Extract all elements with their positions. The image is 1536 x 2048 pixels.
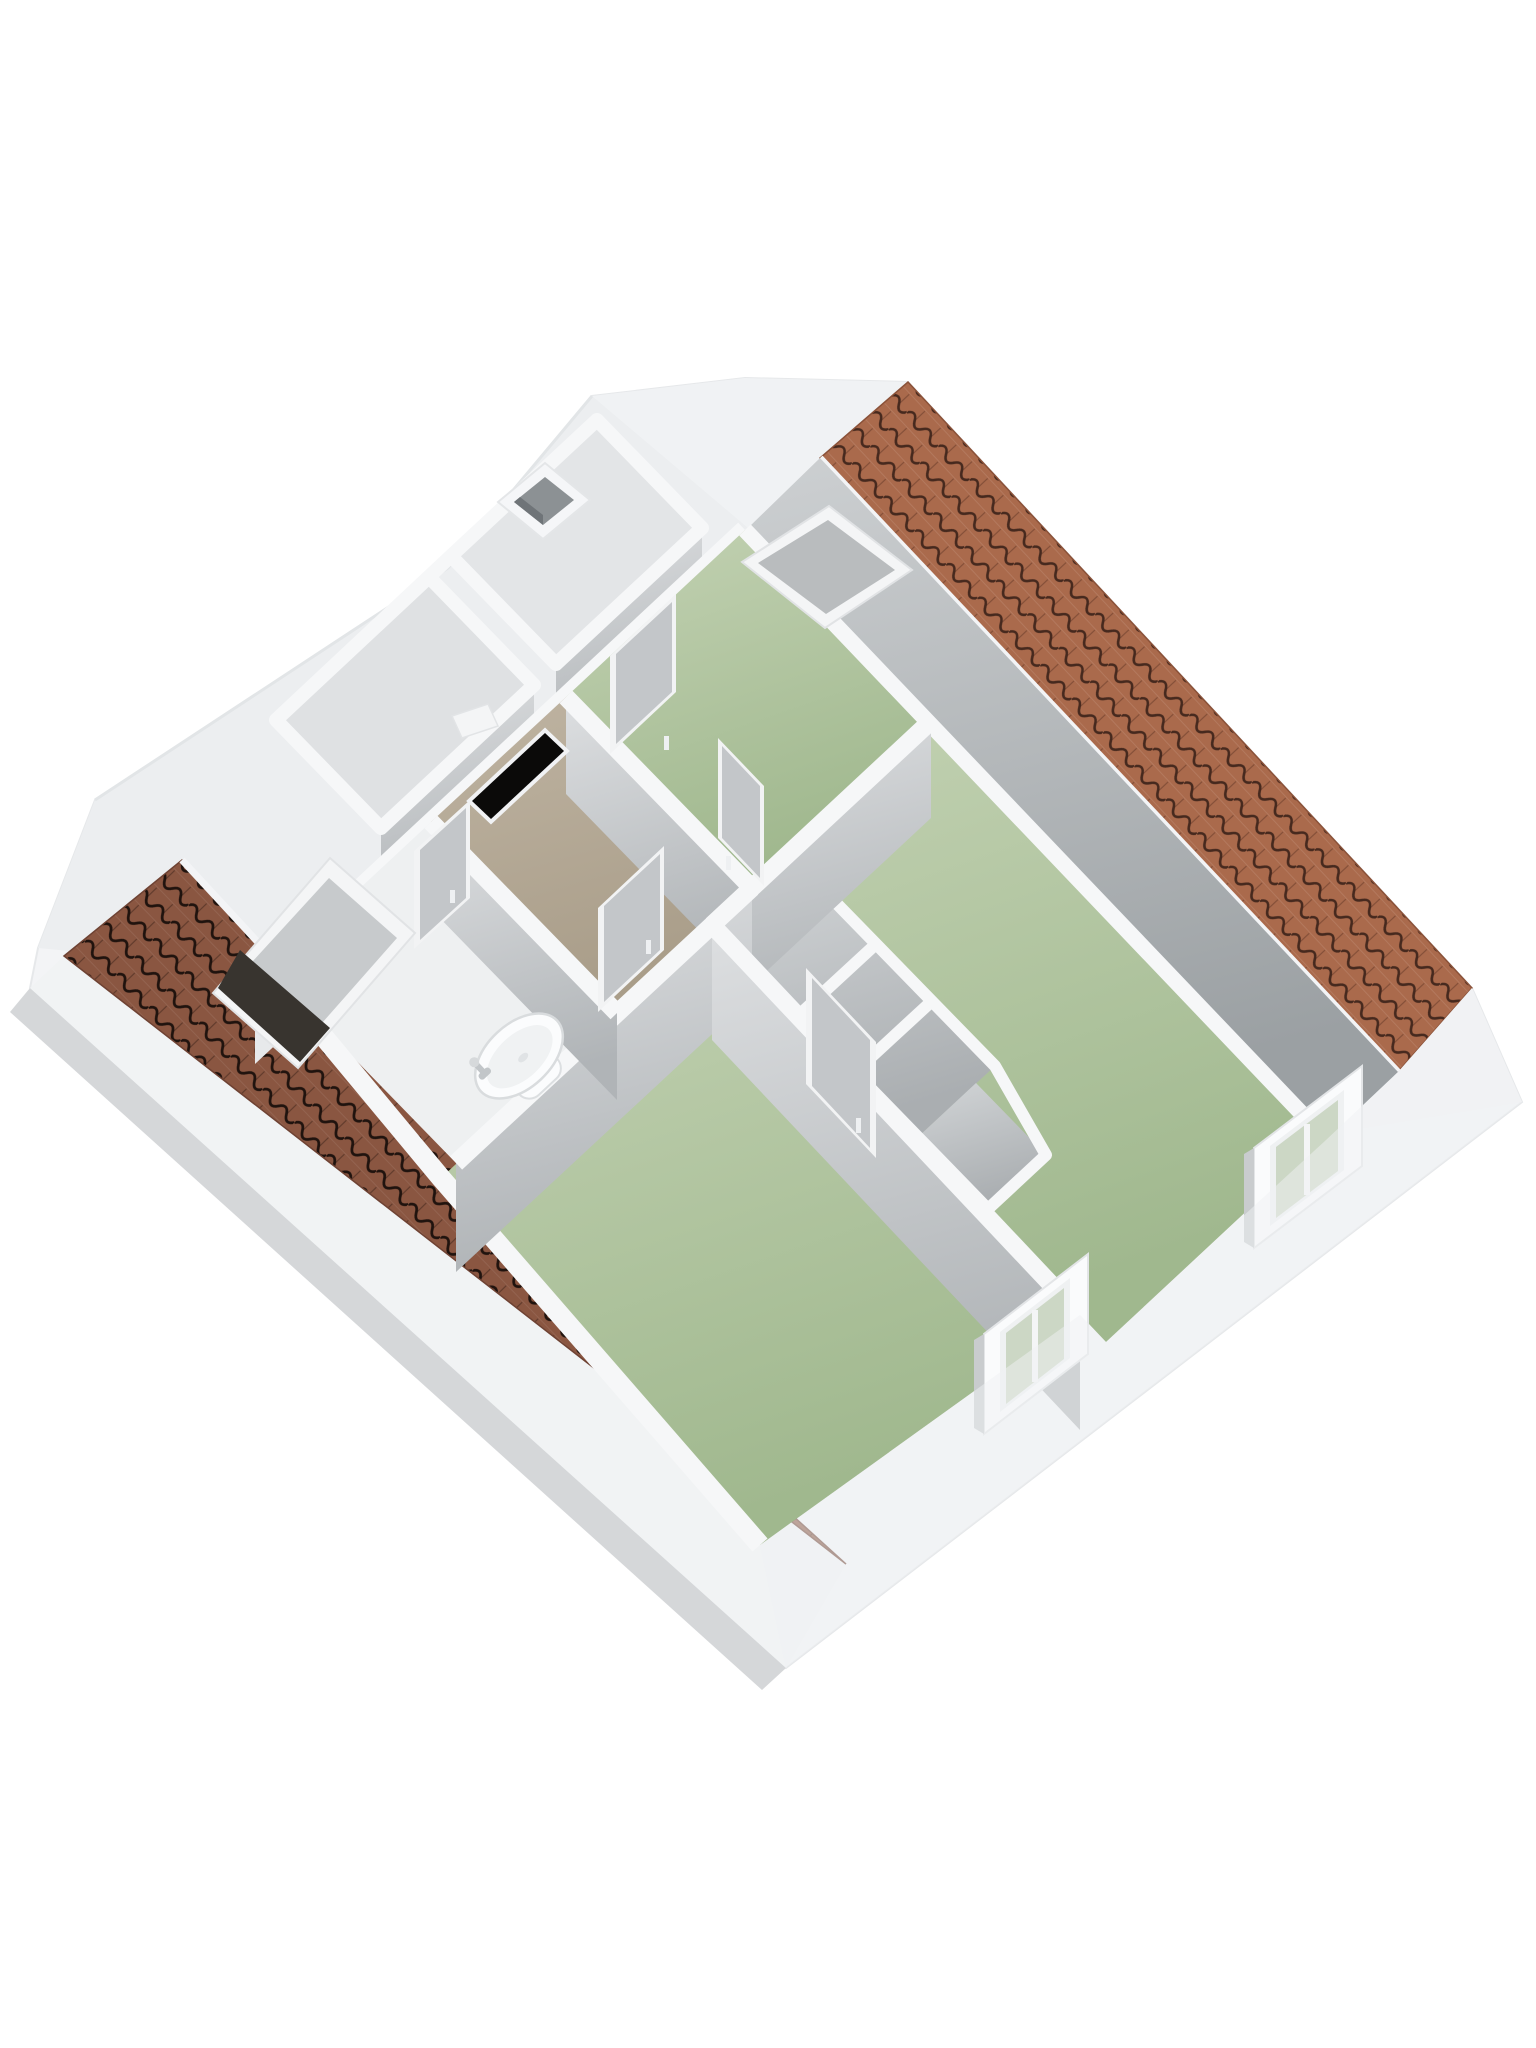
- door-handle: [646, 940, 651, 954]
- door-handle: [856, 1118, 861, 1133]
- door-handle: [450, 890, 455, 903]
- floorplan-3d-render: [0, 0, 1536, 2048]
- floorplan-canvas: [0, 0, 1536, 2048]
- door-handle: [726, 856, 731, 870]
- door-handle: [664, 736, 669, 750]
